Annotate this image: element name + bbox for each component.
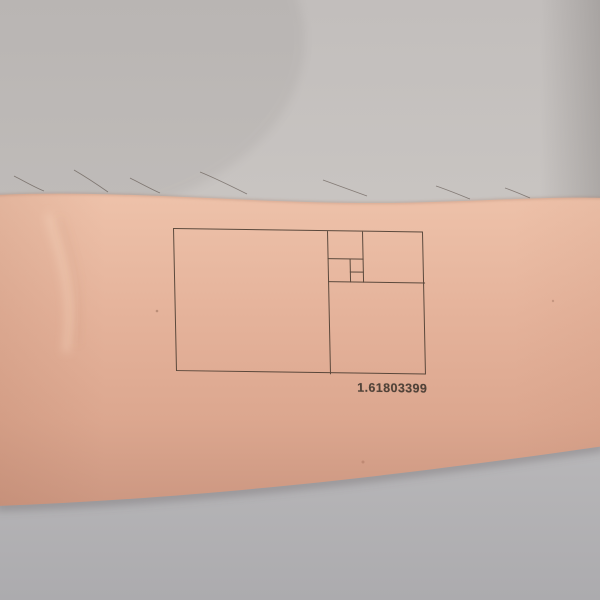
figure-cluster-horizontal-divider <box>328 258 364 260</box>
figure-strip-horizontal-divider <box>328 281 425 284</box>
freckle <box>362 461 365 464</box>
figure-main-vertical-divider <box>327 231 331 374</box>
golden-rectangle-figure: 1.61803399 <box>173 228 426 375</box>
figure-strip-vertical-divider <box>362 232 364 283</box>
freckle <box>156 310 159 313</box>
freckle <box>552 300 554 302</box>
golden-ratio-value-label: 1.61803399 <box>357 381 427 396</box>
photo-scene: 1.61803399 <box>0 0 600 600</box>
figure-tiny-horizontal-divider <box>350 271 364 273</box>
